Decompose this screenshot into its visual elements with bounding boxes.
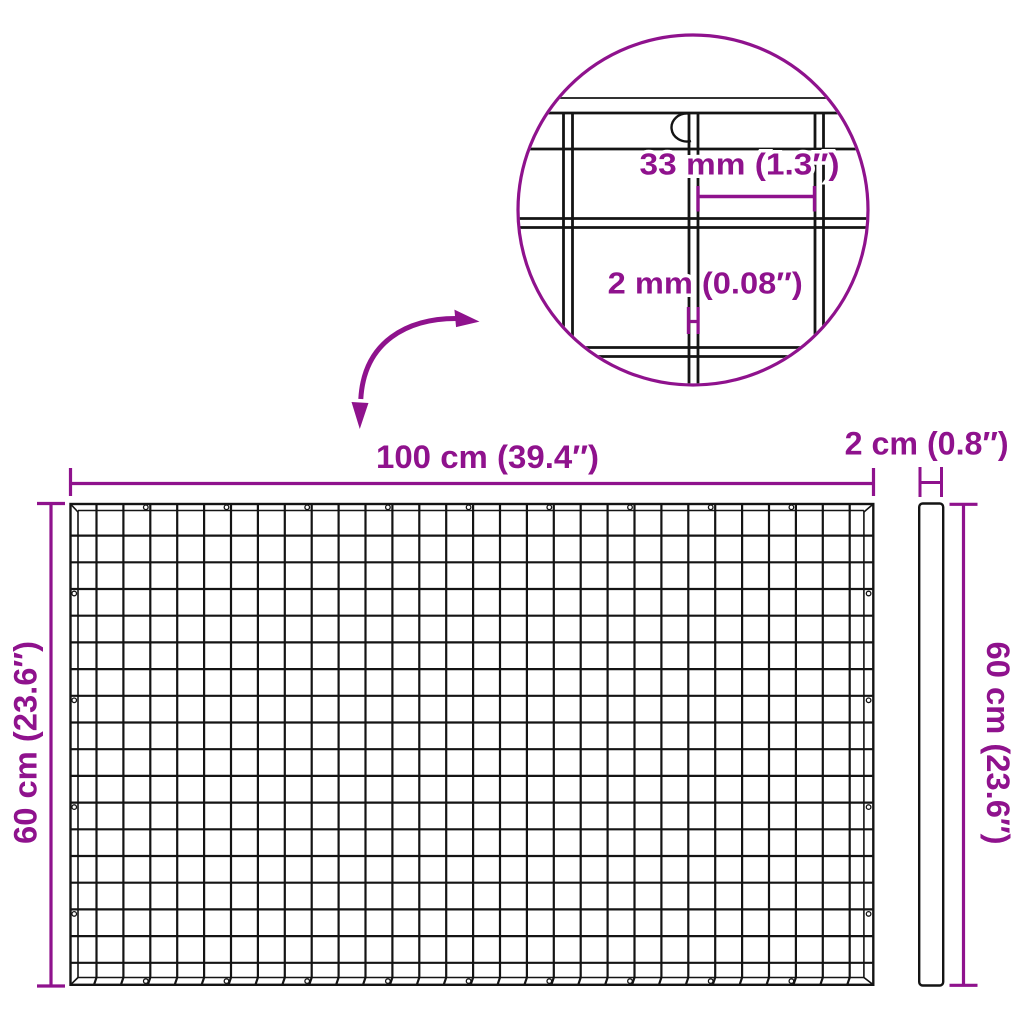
svg-text:2 mm (0.08″): 2 mm (0.08″): [608, 266, 803, 300]
svg-text:60 cm (23.6″): 60 cm (23.6″): [8, 641, 44, 844]
svg-text:33 mm (1.3″): 33 mm (1.3″): [640, 147, 840, 181]
svg-text:60 cm (23.6″): 60 cm (23.6″): [980, 642, 1016, 845]
svg-text:100 cm (39.4″): 100 cm (39.4″): [376, 439, 599, 475]
svg-text:2 cm (0.8″): 2 cm (0.8″): [845, 426, 1009, 462]
